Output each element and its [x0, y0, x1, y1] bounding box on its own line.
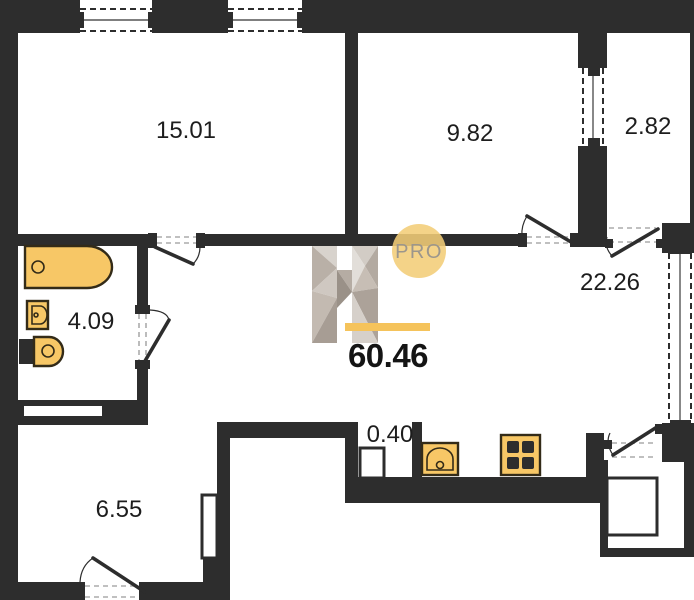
door-entry	[74, 558, 150, 600]
window-balcony	[583, 66, 603, 148]
window-top-left	[75, 9, 157, 31]
door-room9	[518, 216, 579, 247]
floor-plan-drawing: PRO 60.46 15.01 9.82 2.82 22.26 4.09 0.4…	[0, 0, 694, 600]
door-balcony	[605, 228, 664, 256]
room-label-living: 22.26	[580, 269, 640, 296]
brand-accent-bar	[345, 323, 430, 331]
door-shaft	[602, 424, 663, 457]
total-area-label: 60.46	[348, 337, 428, 374]
shaft-box	[607, 478, 657, 535]
room-label-15: 15.01	[156, 117, 216, 144]
room-label-hall: 6.55	[96, 496, 143, 523]
door-bathroom	[135, 305, 169, 369]
stove-icon	[501, 435, 540, 475]
bathtub-icon	[25, 246, 112, 288]
door-room15	[148, 233, 205, 264]
floor-plan: PRO 60.46 15.01 9.82 2.82 22.26 4.09 0.4…	[0, 0, 694, 600]
hall-niche	[202, 495, 217, 558]
duct-box	[360, 448, 384, 478]
pro-badge-label: PRO	[395, 241, 443, 263]
window-top-middle	[224, 9, 306, 31]
room-label-bathroom: 4.09	[68, 308, 115, 335]
room-label-balcony: 2.82	[625, 113, 672, 140]
window-living	[669, 246, 691, 428]
room-label-duct: 0.40	[367, 421, 414, 448]
washbasin-icon	[27, 301, 48, 329]
room-label-9: 9.82	[447, 120, 494, 147]
kitchen-sink-icon	[422, 443, 458, 475]
toilet-icon	[19, 337, 63, 366]
